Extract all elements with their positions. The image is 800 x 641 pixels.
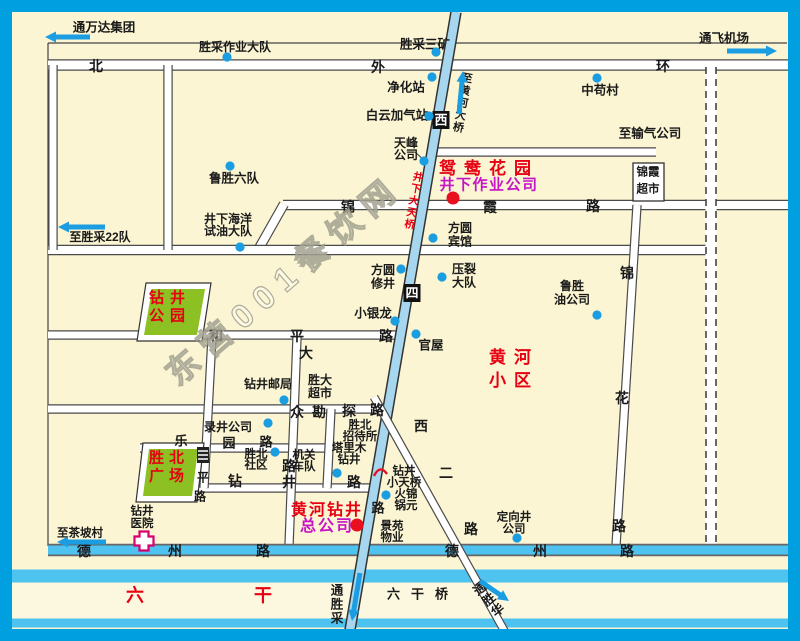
road-char-二-27: 二 [439,465,453,481]
zuanjing-post-office: 钻井邮局 [244,376,292,391]
liugan-bridge: 六干桥 [387,587,459,602]
huanghe-drilling-hq-2: 总公司 [300,516,354,535]
huanghe-drilling-hq-1: 黄河钻井 [291,500,363,519]
shengbei-community: 胜北社区 [244,446,268,471]
road-char-环-2: 环 [656,58,670,74]
road-char-钻-18: 钻 [228,473,242,489]
dot-tianfeng [419,156,428,165]
zuanjing-hospital: 钻井医院 [131,503,154,530]
dot-jingxia-operation [447,192,460,205]
zhonggou-village: 中苟村 [581,82,619,97]
tong-wanda-group: 通万达集团 [73,19,136,34]
road-char-干-37: 干 [254,585,272,605]
dot-fangyuan-workover [396,264,405,273]
dongying-drilling-area-map: 西四北外环锦霞路和平路大众路勘探路乐园路钻井路平路锦花路西二路路德州路德州路六干… [0,0,800,641]
road-char-大-9: 大 [299,345,313,361]
dot-shengbei-community [270,447,279,456]
jingyuan-property: 景苑物业 [380,518,404,544]
lusheng-no6-team: 鲁胜六队 [208,170,260,185]
xiaoyinlong: 小银龙 [353,305,392,320]
xisi-road-badge-xi-char: 西 [434,113,447,128]
road-char-众-10: 众 [290,404,304,420]
map-canvas: 西四北外环锦霞路和平路大众路勘探路乐园路钻井路平路锦花路西二路路德州路德州路六干… [0,0,800,641]
road-char-路-8: 路 [379,328,394,344]
short-vertical-road [327,409,331,488]
jinyuan-hotpot: 火锦锅元 [395,486,418,512]
to-shengcai-22: 至胜采22队 [69,229,131,244]
road-char-路-29: 路 [371,501,385,516]
road-char-路-28: 路 [464,521,479,537]
shengcai-work-brigade: 胜采作业大队 [199,39,272,54]
baiyun-gas-station: 白云加气站 [366,107,429,122]
dot-post-office [279,395,288,404]
jingxia-operation-company: 井下作业公司 [439,175,538,193]
road-char-州-31: 州 [167,543,182,559]
road-char-六-36: 六 [126,584,144,605]
road-char-霞-4: 霞 [483,199,498,215]
road-char-探-13: 探 [342,403,356,419]
road-char-路-25: 路 [612,518,627,534]
shengbei-square: 胜北广场 [149,449,189,484]
road-char-锦-3: 锦 [341,199,355,215]
dot-baiyun-gas [424,111,433,120]
fangyuan-workover: 方圆修井 [370,262,395,291]
dot-jingxia-ocean [235,242,244,251]
road-char-路-32: 路 [256,543,271,559]
dot-xiaoyinlong [390,316,399,325]
dot-fangyuan-hotel [428,233,437,242]
road-char-路-35: 路 [620,543,635,559]
zuanjing-park: 钻井公园 [149,288,191,324]
shengda-supermarket: 胜大超市 [307,372,332,400]
road-char-德-33: 德 [445,543,459,559]
dot-huanghe-drilling-hq [351,519,364,532]
road-char-德-30: 德 [77,543,91,559]
lujing-company: 录井公司 [204,419,252,434]
jingxia-ocean-test-brigade: 井下海洋试油大队 [204,211,253,238]
dot-lujing [263,418,272,427]
jiguan-motorcade: 机关车队 [293,447,316,473]
yuanyang-garden: 鸳鸯花园 [439,158,539,178]
guanwu: 官屋 [418,337,444,352]
road-char-井-19: 井 [282,474,296,490]
road-char-勘-12: 勘 [312,404,326,420]
road-char-路-20: 路 [347,474,362,490]
arrow-huanghe-bridge-up-shaft [459,79,462,114]
to-chapo-village: 至茶坡村 [57,525,103,539]
dot-hotpot [381,490,390,499]
dot-shengcai-no3-mine [431,47,440,56]
dot-guanwu [411,329,420,338]
purification-station: 净化站 [387,79,425,94]
shengcai-no3-mine: 胜采三矿 [400,36,451,51]
road-char-园-16: 园 [222,436,235,451]
road-char-路-5: 路 [586,198,601,214]
yalie-brigade: 压裂大队 [452,261,477,290]
road-char-平-7: 平 [290,328,304,344]
tianfeng-company: 天峰公司 [394,135,419,162]
road-char-平-21: 平 [197,470,209,484]
road-char-乐-15: 乐 [174,434,187,449]
dot-lusheng-no6 [225,161,234,170]
road-char-北-0: 北 [89,58,103,74]
dot-dingxiangjing [512,533,521,542]
dot-yalie [437,272,446,281]
dot-lusheng-oil [592,310,601,319]
road-char-外-1: 外 [371,59,385,75]
road-char-路-14: 路 [370,402,385,418]
road-char-西-26: 西 [414,418,428,434]
road-char-路-17: 路 [259,435,273,450]
road-char-锦-23: 锦 [620,265,634,281]
road-char-州-34: 州 [532,543,547,559]
road-char-花-24: 花 [615,390,629,406]
tong-shengcai: 通胜采 [330,582,344,625]
road-char-路-22: 路 [194,488,207,503]
dot-talimu [332,468,341,477]
to-gas-company: 至输气公司 [619,125,682,140]
tong-airport: 通飞机场 [699,30,749,45]
dot-shengcai-work-brigade [222,52,231,61]
road-char-和-6: 和 [209,328,223,344]
xisi-road-badge-si-char: 四 [405,286,418,301]
fangyuan-hotel: 方圆宾馆 [448,220,472,249]
dot-zhonggou-village [592,73,601,82]
dot-purification-station [427,72,436,81]
